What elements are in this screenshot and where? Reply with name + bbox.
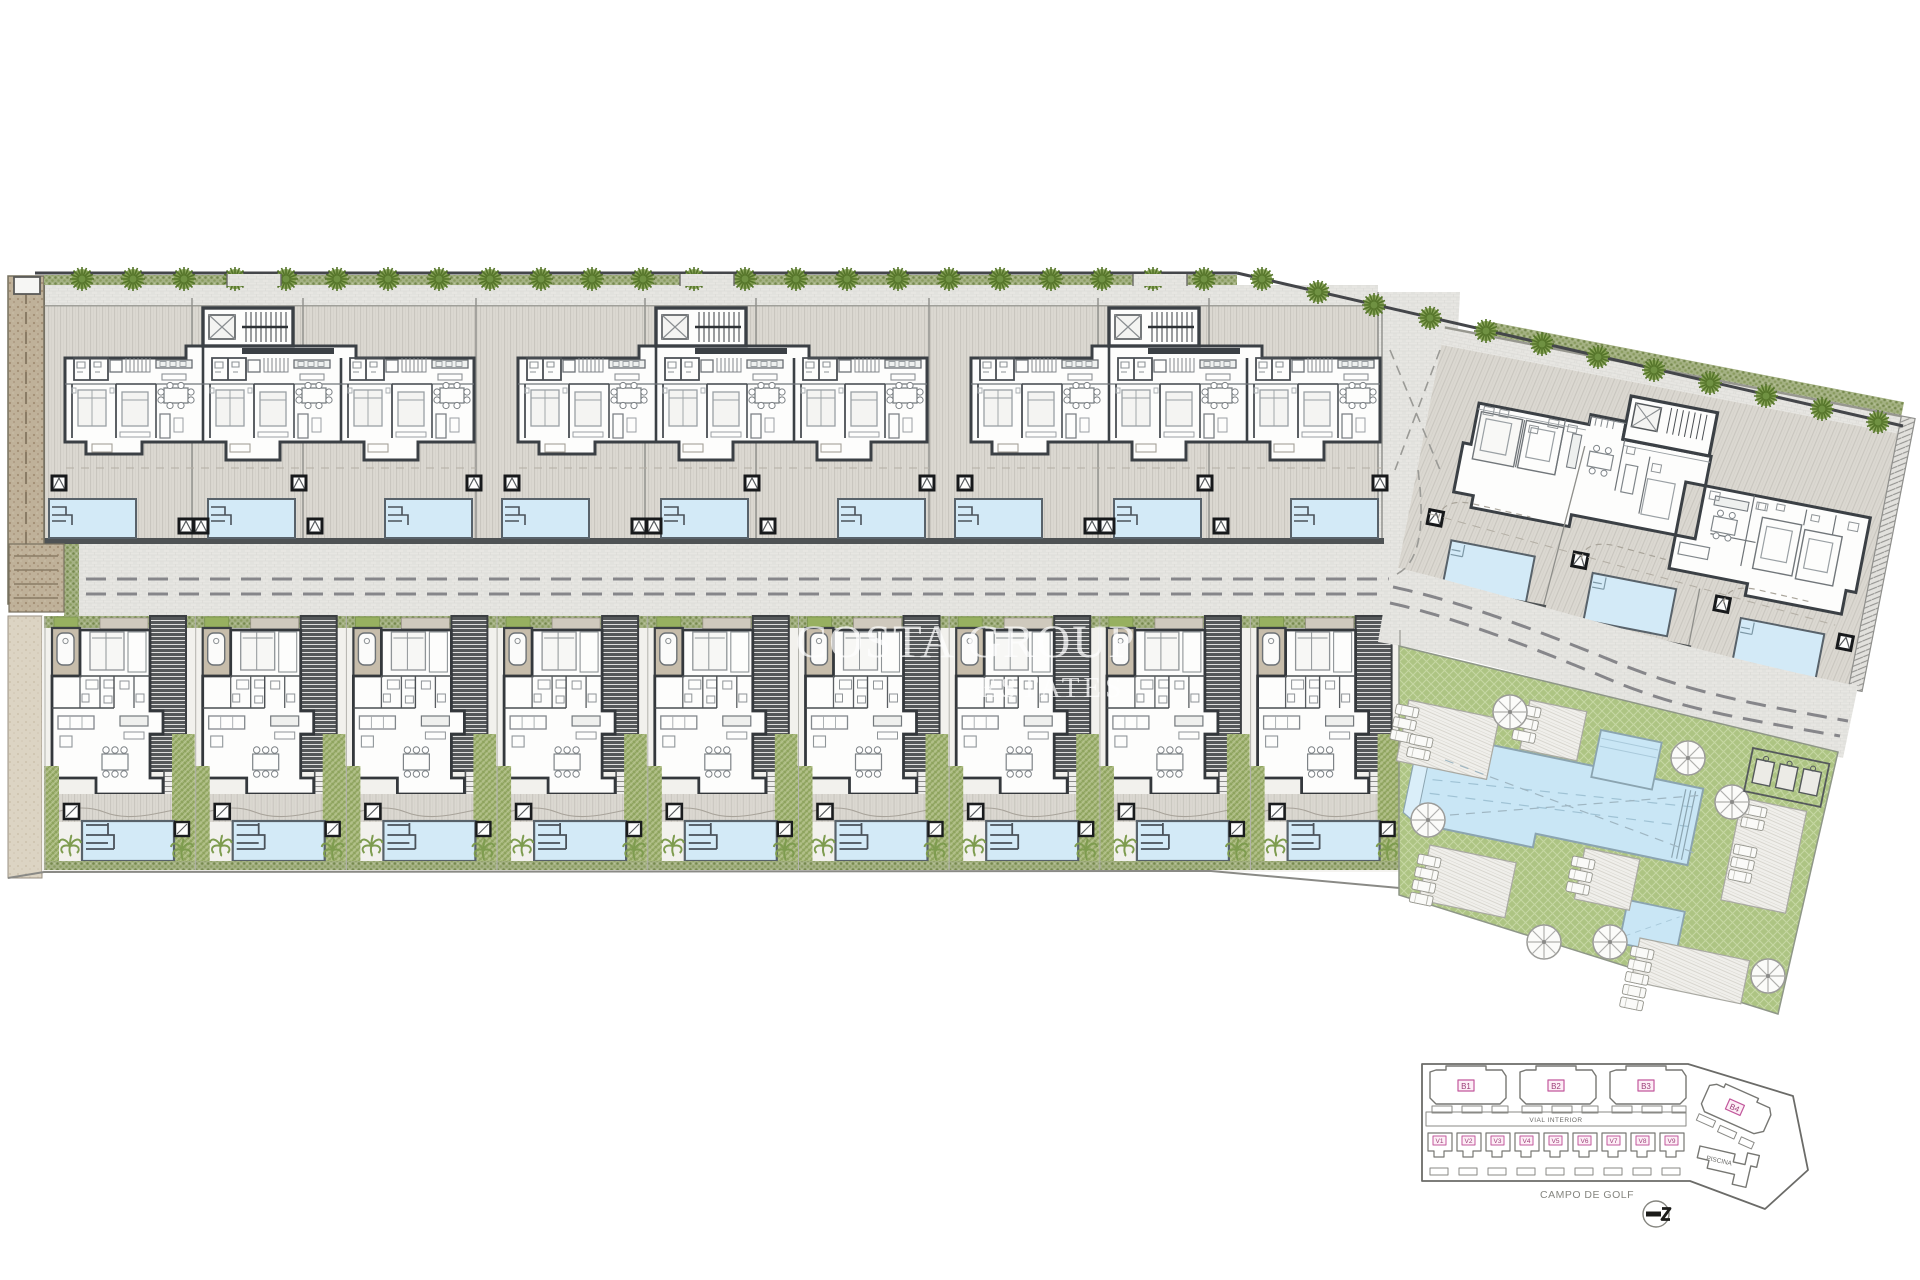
svg-text:V5: V5: [1552, 1138, 1560, 1145]
svg-text:CAMPO DE GOLF: CAMPO DE GOLF: [1540, 1189, 1634, 1201]
svg-text:ESTATES: ESTATES: [979, 672, 1126, 704]
svg-text:V4: V4: [1523, 1138, 1531, 1145]
svg-text:V3: V3: [1494, 1138, 1502, 1145]
svg-text:B3: B3: [1641, 1082, 1651, 1091]
svg-text:V1: V1: [1436, 1138, 1444, 1145]
svg-text:V6: V6: [1581, 1138, 1589, 1145]
svg-text:V7: V7: [1610, 1138, 1618, 1145]
svg-text:B1: B1: [1461, 1082, 1471, 1091]
svg-text:V8: V8: [1639, 1138, 1647, 1145]
svg-text:V2: V2: [1465, 1138, 1473, 1145]
svg-text:COSTA GROUP: COSTA GROUP: [796, 616, 1137, 668]
svg-text:B2: B2: [1551, 1082, 1561, 1091]
svg-text:V9: V9: [1668, 1138, 1676, 1145]
svg-text:VIAL INTERIOR: VIAL INTERIOR: [1529, 1117, 1582, 1124]
